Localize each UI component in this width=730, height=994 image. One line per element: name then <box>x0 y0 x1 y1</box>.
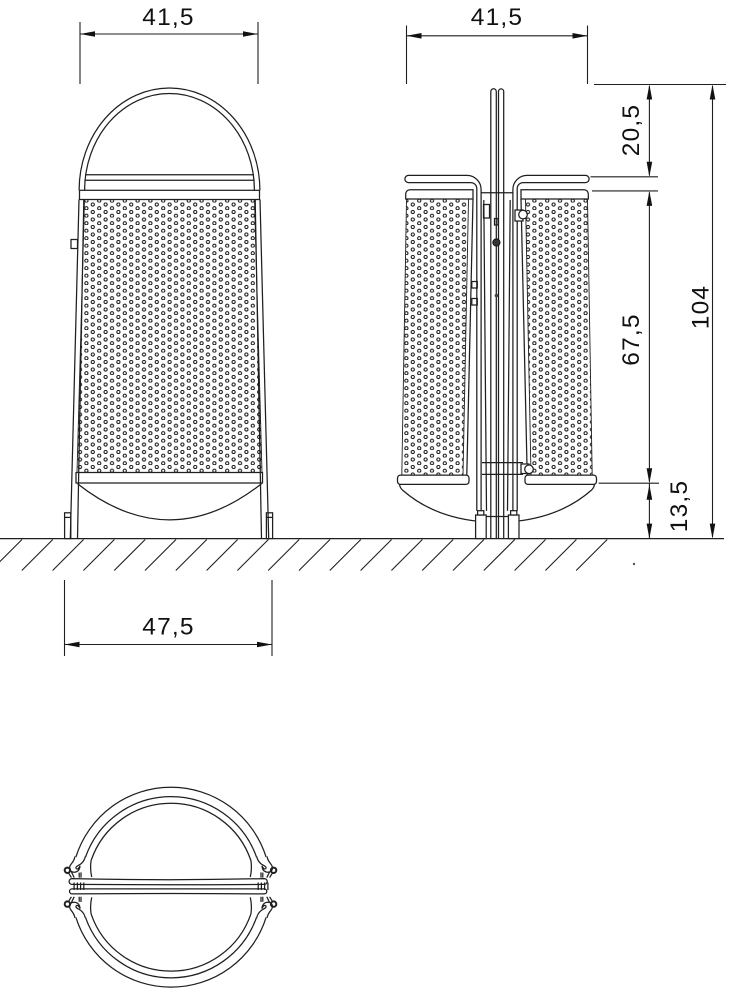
svg-text:41,5: 41,5 <box>471 4 523 31</box>
svg-text:47,5: 47,5 <box>142 614 194 641</box>
svg-text:20,5: 20,5 <box>618 104 645 156</box>
svg-text:13,5: 13,5 <box>666 480 693 532</box>
svg-text:104: 104 <box>688 285 715 329</box>
svg-text:41,5: 41,5 <box>142 4 194 31</box>
svg-text:67,5: 67,5 <box>618 313 645 365</box>
